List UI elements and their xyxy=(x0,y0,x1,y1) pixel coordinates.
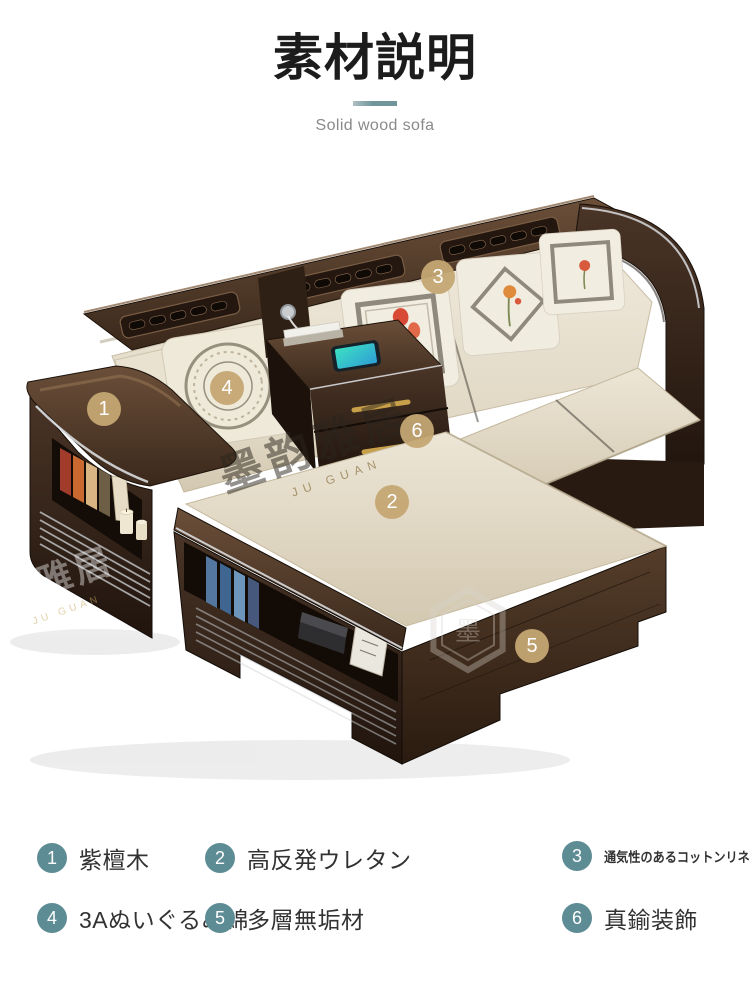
legend-item-1: 1 紫檀木 xyxy=(37,841,150,875)
material-callout-5: 5 xyxy=(515,629,549,663)
legend-number-badge: 4 xyxy=(37,903,67,933)
material-callout-4: 4 xyxy=(210,371,244,405)
legend-item-5: 5 多層無垢材 xyxy=(205,901,365,935)
pillow-small xyxy=(539,229,626,316)
legend-item-6: 6 真鍮装飾 xyxy=(562,901,698,935)
legend-number-badge: 3 xyxy=(562,841,592,871)
material-callout-2: 2 xyxy=(375,485,409,519)
legend-item-label: 通気性のあるコットンリネン xyxy=(604,846,750,866)
legend-number-badge: 1 xyxy=(37,843,67,873)
sofa-product-image: 墨韵雅居 JU GUAN 韵雅居 JU GUAN 墨 1 2 3 4 5 6 xyxy=(0,160,750,800)
legend-number-badge: 6 xyxy=(562,903,592,933)
legend-number-badge: 5 xyxy=(205,903,235,933)
legend-item-label: 紫檀木 xyxy=(79,841,150,875)
title-divider xyxy=(353,101,397,106)
legend-item-label: 多層無垢材 xyxy=(247,901,365,935)
material-callout-6: 6 xyxy=(400,414,434,448)
material-callout-1: 1 xyxy=(87,392,121,426)
legend-number-badge: 2 xyxy=(205,843,235,873)
page-subtitle: Solid wood sofa xyxy=(0,117,750,135)
legend-item-2: 2 高反発ウレタン xyxy=(205,841,412,875)
page-title: 素材説明 xyxy=(0,30,750,88)
legend-item-label: 真鍮装飾 xyxy=(604,901,698,935)
sofa-illustration: 墨韵雅居 JU GUAN 韵雅居 JU GUAN 墨 xyxy=(0,160,750,800)
legend-item-label: 高反発ウレタン xyxy=(247,841,412,875)
material-legend: 1 紫檀木 2 高反発ウレタン 3 通気性のあるコットンリネン 4 3Aぬいぐる… xyxy=(0,820,750,981)
watermark-logo-char: 墨 xyxy=(455,616,481,646)
material-description-page: 素材説明 Solid wood sofa xyxy=(0,0,750,981)
page-header: 素材説明 Solid wood sofa xyxy=(0,30,750,135)
legend-item-3: 3 通気性のあるコットンリネン xyxy=(562,841,750,871)
material-callout-3: 3 xyxy=(421,260,455,294)
